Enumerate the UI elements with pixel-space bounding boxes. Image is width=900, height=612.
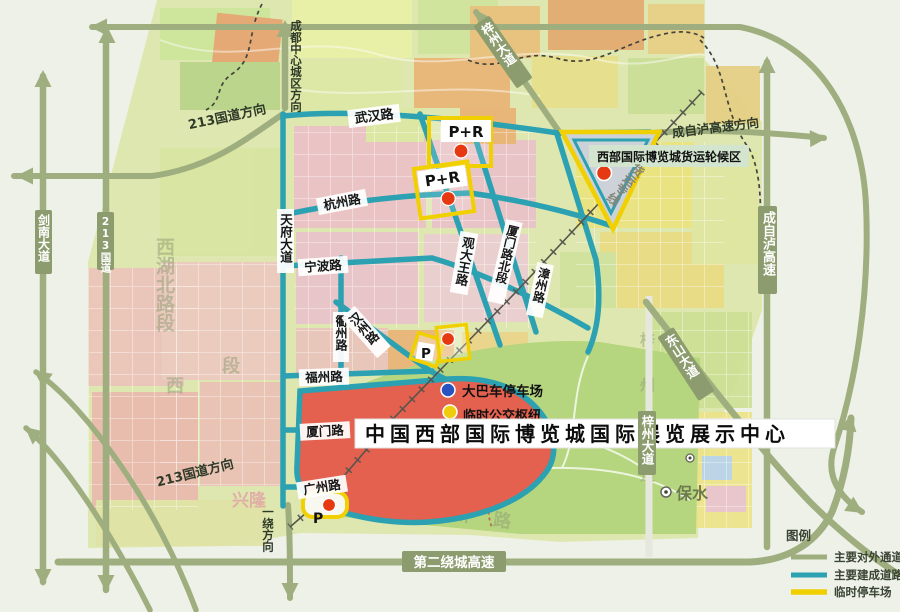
label-second-ring-expressway: 第二绕城高速 — [414, 554, 495, 571]
label-jiannan-avenue: 剑南大道 — [37, 213, 51, 263]
label-tianfu-avenue: 天府大道 — [278, 213, 293, 264]
label-czl-expressway: 成自泸高速 — [760, 210, 776, 277]
expo-banner-label: 中国西部国际博览城国际展览展示中心 — [365, 422, 790, 446]
pr-label-1: P+R — [448, 123, 484, 141]
legend: 图例 主要对外通道 主要建成道路 临时停车场 — [786, 528, 900, 599]
p-label-bottom: P — [313, 511, 323, 527]
pr-marker-1: P+R — [429, 118, 491, 166]
transit-hub-dot — [443, 405, 457, 419]
freight-area-tag: 西部国际博览城货运轮候区 — [589, 145, 749, 167]
label-ningbo-road: 宁波路 — [304, 257, 343, 275]
legend-label-parking: 临时停车场 — [834, 585, 892, 599]
expo-traffic-map: 西湖北路段 段 西 兴隆 广州路 梓州大道 — [0, 0, 900, 612]
map-canvas: 西湖北路段 段 西 兴隆 广州路 梓州大道 — [0, 0, 900, 612]
label-fuzhou-road: 福州路 — [304, 369, 343, 385]
p-label-middle: P — [421, 346, 431, 362]
expo-banner: 中国西部国际博览城国际展览展示中心 — [355, 419, 835, 448]
legend-label-built: 主要建成道路 — [834, 568, 900, 582]
bus-parking-dot — [441, 383, 455, 397]
watermark-duan: 段 — [222, 355, 241, 377]
watermark-xihu: 西湖北路段 — [153, 237, 175, 333]
baoshui-label: 保水 — [675, 484, 709, 503]
pr-marker-2: P+R — [414, 161, 474, 218]
legend-title: 图例 — [786, 528, 811, 543]
label-xiamen-road: 厦门路 — [306, 423, 345, 440]
watermark-xi: 西 — [166, 376, 184, 397]
label-g213: 213国道 — [100, 216, 112, 274]
freight-area-dot — [597, 166, 612, 181]
legend-label-external: 主要对外通道 — [834, 550, 900, 564]
bus-parking-label: 大巴车停车场 — [462, 383, 543, 400]
label-zizhou-avenue: 梓州大道 — [640, 414, 655, 466]
label-chengdu-center-direction: 成都中心城区方向 — [289, 19, 303, 113]
freight-area-label: 西部国际博览城货运轮候区 — [597, 149, 741, 164]
label-yirao-direction: 一绕方向 — [261, 506, 275, 553]
